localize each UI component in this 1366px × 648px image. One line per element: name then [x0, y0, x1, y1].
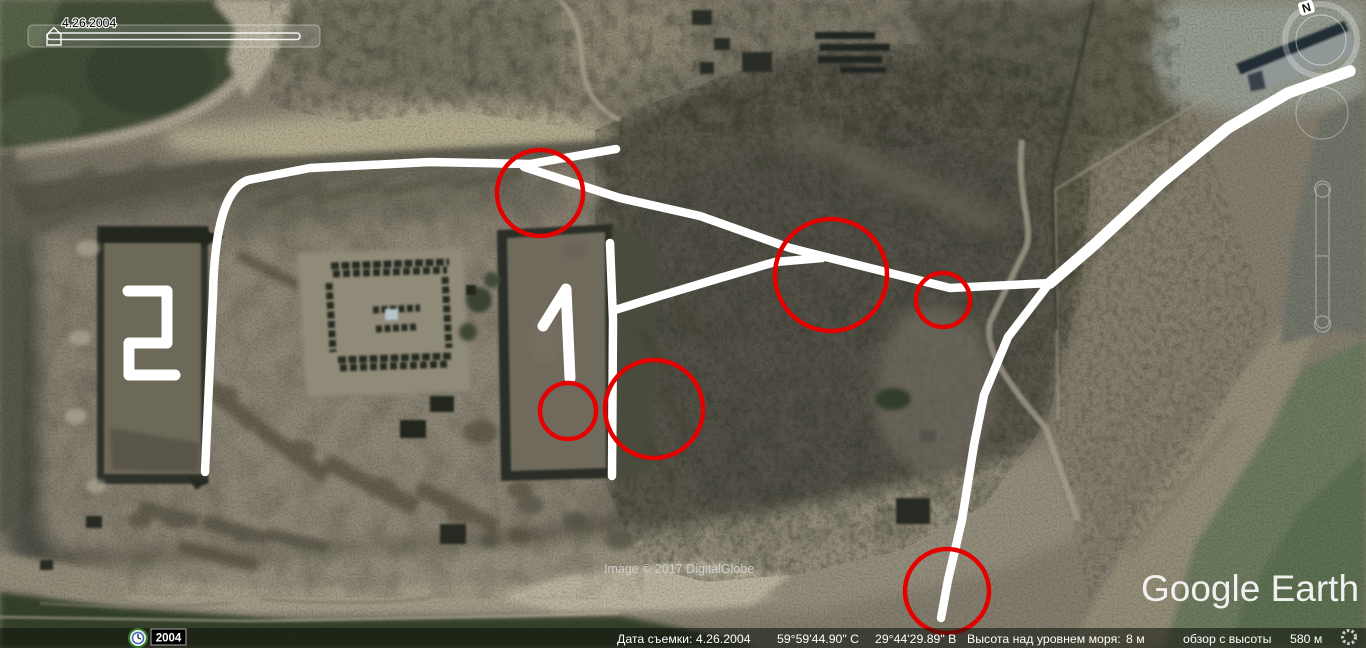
svg-text:Высота над уровнем моря:: Высота над уровнем моря:: [967, 632, 1121, 646]
svg-text:Image © 2017 DigitalGlobe: Image © 2017 DigitalGlobe: [604, 562, 754, 576]
svg-text:29°44'29.89" В: 29°44'29.89" В: [875, 632, 956, 646]
svg-text:4.26.2004: 4.26.2004: [62, 16, 116, 30]
svg-text:59°59'44.90" С: 59°59'44.90" С: [777, 632, 859, 646]
svg-text:Дата съемки: 4.26.2004: Дата съемки: 4.26.2004: [617, 632, 751, 646]
svg-text:Google Earth: Google Earth: [1141, 568, 1359, 609]
svg-text:580 м: 580 м: [1290, 632, 1322, 646]
svg-text:2004: 2004: [156, 633, 182, 645]
svg-text:обзор с высоты: обзор с высоты: [1183, 632, 1271, 646]
svg-text:8 м: 8 м: [1126, 632, 1145, 646]
